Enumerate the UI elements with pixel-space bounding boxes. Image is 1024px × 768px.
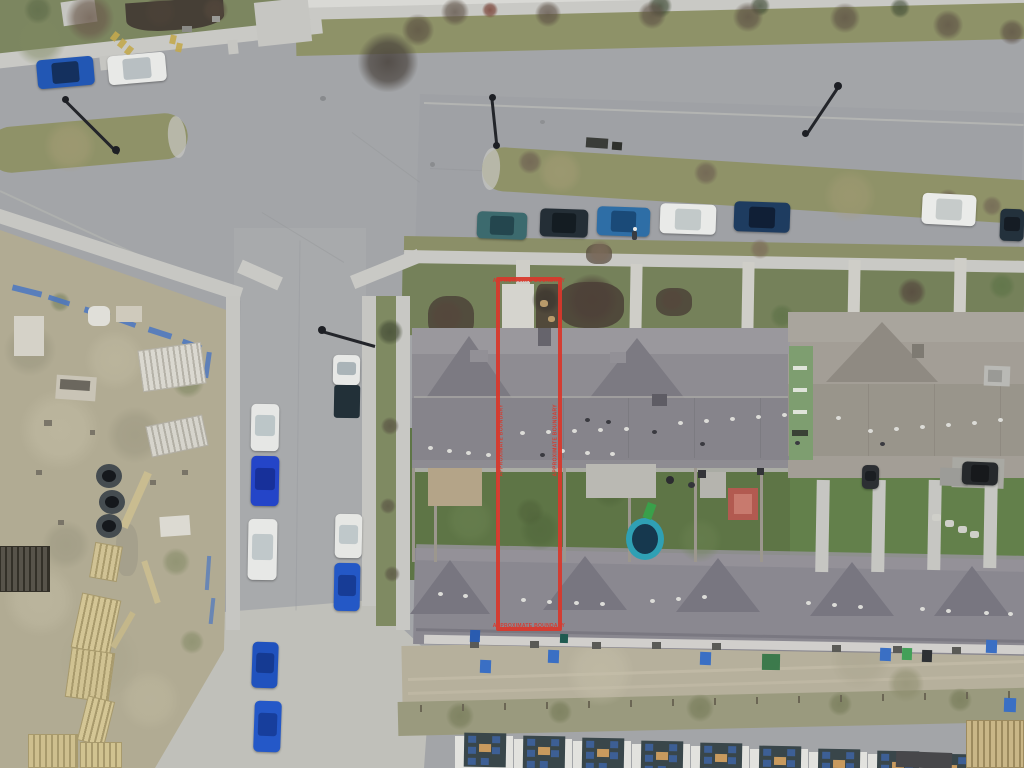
shrub — [989, 273, 1015, 299]
car-white — [921, 193, 977, 227]
skylight — [527, 761, 535, 768]
street-light — [493, 142, 500, 149]
recycle-bin — [470, 630, 480, 642]
car-glass — [337, 362, 356, 376]
car-glass — [256, 653, 275, 674]
roof-vent — [702, 595, 707, 599]
car-white — [251, 404, 280, 451]
stepping-stone — [970, 531, 979, 538]
median-tree — [694, 161, 718, 185]
skylight — [846, 763, 854, 768]
bin-black — [922, 650, 932, 662]
unit-roof — [464, 733, 507, 768]
green-wall-window — [793, 366, 807, 370]
green-wall — [789, 346, 813, 460]
fence-post — [420, 705, 422, 712]
fence-post — [966, 692, 968, 699]
construction-unit — [750, 746, 818, 768]
aerial-photo: APPROXIMATE BOUNDARY APPROXIMATE BOUNDAR… — [0, 0, 1024, 768]
car-blue — [251, 642, 279, 689]
weed-clump — [446, 702, 474, 730]
tree — [66, 0, 114, 42]
skylight — [846, 752, 854, 759]
curb-ramp-pad — [175, 42, 183, 52]
road-crack — [352, 132, 421, 183]
bin-green — [560, 634, 568, 643]
fence-post — [462, 704, 464, 711]
green-wall-window — [793, 388, 807, 392]
skylight — [669, 744, 677, 751]
lot-patch — [20, 390, 100, 470]
shrub — [660, 288, 684, 312]
yard-item — [182, 26, 192, 32]
garage-door — [592, 642, 601, 649]
fence-post — [756, 697, 758, 704]
roof-vent-dark — [880, 442, 885, 446]
roof-vent — [1008, 612, 1013, 616]
roof-vent-dark — [585, 418, 590, 422]
skylight — [822, 752, 830, 759]
construction-unit — [514, 736, 582, 768]
car-white — [659, 203, 716, 235]
car-glass — [252, 533, 273, 560]
roof-vent — [920, 607, 925, 611]
manhole — [430, 162, 435, 167]
lot-debris — [44, 420, 52, 426]
roof-dormer — [610, 352, 626, 363]
tree — [441, 0, 469, 26]
car-blue — [253, 701, 282, 753]
bush — [24, 0, 52, 24]
median-bench — [586, 137, 609, 149]
utility-box-green — [762, 654, 780, 670]
bush — [381, 417, 399, 435]
roof-hatch — [479, 744, 491, 752]
fence-post — [798, 696, 800, 703]
pipe — [96, 464, 122, 488]
garage-door — [652, 642, 661, 649]
roof-vent — [730, 417, 735, 421]
bbq — [666, 476, 674, 484]
car-glass — [552, 213, 576, 233]
roof-vent — [946, 423, 951, 427]
roof-vent — [486, 453, 491, 457]
roof-vent — [574, 601, 579, 605]
roof-vent — [624, 427, 629, 431]
street-light — [489, 94, 496, 101]
roof-vent — [678, 421, 683, 425]
roof-vent — [920, 425, 925, 429]
lot-grass — [162, 548, 190, 576]
street-light — [834, 82, 842, 90]
construction-unit — [455, 733, 523, 768]
car-glass — [339, 524, 358, 544]
car-glass — [255, 415, 275, 436]
construction-unit — [573, 738, 641, 768]
fence-post — [924, 693, 926, 700]
bush — [380, 498, 396, 514]
car-teal — [477, 211, 528, 240]
roof-slope-south — [788, 384, 1024, 456]
lumber-pile — [65, 647, 116, 703]
fence-post — [714, 698, 716, 705]
skylight — [540, 761, 548, 768]
unit-roof — [641, 741, 684, 768]
lot-debris — [90, 430, 95, 435]
roof-hatch — [774, 757, 786, 765]
unit-roof — [523, 736, 566, 768]
pool — [626, 518, 664, 560]
manhole — [540, 120, 545, 124]
boundary-label-right: APPROXIMATE BOUNDARY — [554, 411, 559, 477]
recycle-bin — [700, 652, 711, 665]
skylight — [527, 739, 535, 746]
street-light — [802, 130, 809, 137]
car-glass — [255, 468, 275, 490]
weed-clump — [948, 688, 972, 712]
street-light — [318, 326, 326, 334]
roof-vent-dark — [700, 442, 705, 446]
fence-post — [882, 694, 884, 701]
car-glass — [971, 465, 989, 482]
skylight — [822, 763, 830, 768]
roof-vent — [572, 429, 577, 433]
roof-vent — [946, 609, 951, 613]
skylight — [787, 760, 795, 767]
car-glass — [1003, 216, 1020, 231]
roof-vent — [600, 602, 605, 606]
roof-vent — [704, 419, 709, 423]
unit-roof — [818, 749, 861, 768]
stepping-stone — [958, 526, 967, 533]
skylight — [645, 755, 653, 762]
car-glass — [748, 206, 776, 228]
green-wall-window — [792, 430, 808, 436]
fence-post — [504, 703, 506, 710]
car-white — [335, 514, 363, 558]
roof-vent — [782, 413, 787, 417]
roof-vent — [868, 429, 873, 433]
tree — [830, 3, 860, 33]
fence — [760, 468, 763, 562]
roof-vent — [836, 416, 841, 420]
car-dark — [999, 209, 1024, 242]
roof-vent — [650, 599, 655, 603]
tree — [733, 2, 763, 32]
recycle-bin — [880, 648, 891, 661]
person-head — [633, 227, 637, 231]
skylight — [492, 747, 500, 754]
alley-weeds — [888, 666, 924, 702]
backyard-walkway — [983, 480, 998, 568]
weed-clump — [686, 694, 714, 722]
fence-post — [672, 699, 674, 706]
car-dark — [962, 461, 999, 485]
skylight — [728, 757, 736, 764]
trailer-top — [60, 379, 91, 391]
roof-vent — [598, 428, 603, 432]
fence-post — [546, 702, 548, 709]
fence — [694, 468, 697, 562]
bin-green — [902, 648, 912, 660]
skylight — [468, 736, 476, 743]
skylight — [586, 752, 594, 759]
roof-vent-dark — [606, 420, 611, 424]
boundary-label-bottom: APPROXIMATE BOUNDARY — [493, 624, 565, 629]
sidewalk-street-west — [226, 296, 240, 630]
car-dark — [540, 208, 589, 238]
yard-item — [757, 468, 764, 475]
roof-vent-dark — [652, 430, 657, 434]
unit-roof — [582, 738, 625, 768]
shrub — [898, 278, 926, 306]
roof-vent — [832, 603, 837, 607]
person-body — [632, 231, 637, 240]
fence — [563, 468, 566, 562]
van-white — [107, 52, 167, 86]
lumber-pile — [28, 734, 78, 768]
recycle-bin — [548, 650, 559, 663]
pallet-rack — [0, 546, 50, 592]
skylight — [610, 752, 618, 759]
unit-roof — [700, 743, 743, 768]
median-patch — [538, 150, 582, 194]
median-patch — [824, 170, 876, 222]
skylight — [704, 746, 712, 753]
roof-vent — [894, 427, 899, 431]
skylight — [669, 755, 677, 762]
car-glass — [864, 471, 876, 482]
roof-hatch — [833, 760, 845, 768]
car-glass — [51, 61, 80, 84]
skylight — [704, 757, 712, 764]
tree — [402, 14, 434, 46]
lumber-pile — [80, 742, 122, 768]
weed-clump — [548, 700, 572, 724]
tree — [999, 19, 1024, 45]
roof-vent — [676, 597, 681, 601]
lot-debris — [150, 480, 156, 485]
construction-unit — [809, 749, 877, 768]
property-boundary-overlay: APPROXIMATE BOUNDARY APPROXIMATE BOUNDAR… — [496, 277, 562, 631]
bush — [377, 319, 403, 345]
skylight — [468, 747, 476, 754]
pickup-cab — [333, 355, 361, 385]
car-blue — [334, 563, 361, 611]
skylight — [468, 758, 476, 765]
pipe — [99, 490, 125, 514]
car-darkblue — [733, 201, 790, 233]
roof-vent — [463, 594, 468, 598]
shrub — [566, 274, 618, 326]
deck — [428, 468, 482, 506]
car-dark-small — [862, 465, 879, 489]
skylight — [492, 736, 500, 743]
skylight — [599, 763, 607, 768]
picnic-table-top — [734, 494, 752, 514]
roof-vent — [756, 415, 761, 419]
front-walk — [227, 40, 238, 55]
material-stack — [137, 342, 206, 392]
street-light — [112, 146, 120, 154]
skylight — [645, 744, 653, 751]
lot-grass — [180, 630, 204, 654]
car-blue — [251, 456, 280, 506]
car-blue — [597, 206, 651, 237]
skylight — [610, 741, 618, 748]
roof-slope-north — [788, 312, 1024, 342]
median-tree — [518, 150, 542, 174]
chimney — [652, 394, 667, 406]
roof-vent — [585, 451, 590, 455]
car-glass — [338, 574, 357, 595]
green-wall-window — [793, 410, 807, 414]
lot-debris — [36, 470, 42, 475]
hedge — [890, 0, 910, 18]
roof-vent-dark — [795, 441, 800, 445]
front-walkway — [629, 264, 642, 334]
car-glass — [490, 216, 515, 236]
skylight — [881, 754, 889, 761]
median-tree — [982, 196, 1002, 216]
roof-vent — [858, 605, 863, 609]
driveway — [254, 0, 312, 47]
backyard-walkway — [871, 480, 886, 572]
chimney — [912, 344, 924, 358]
fence-post — [630, 700, 632, 707]
tree-red — [482, 2, 498, 18]
unit-roof — [759, 746, 802, 768]
fence-post — [588, 701, 590, 708]
yard-item — [698, 470, 706, 478]
bbq — [688, 482, 695, 488]
lumber-deck — [966, 720, 1024, 768]
car-glass — [122, 57, 151, 80]
boulevard-tree — [588, 240, 612, 264]
bush — [384, 566, 400, 582]
garage-door — [712, 643, 721, 650]
car-blue — [36, 56, 95, 90]
fence — [412, 468, 415, 562]
recycle-bin — [1004, 698, 1016, 712]
garage-door — [832, 645, 841, 652]
garage-door — [952, 647, 961, 654]
yard-item — [212, 16, 220, 22]
skylight — [763, 760, 771, 767]
roof-vent — [428, 446, 433, 450]
front-walkway — [741, 262, 754, 332]
patio — [586, 464, 656, 498]
roof-hatch — [715, 754, 727, 762]
skylight — [551, 750, 559, 757]
van-white — [247, 519, 277, 580]
manhole — [320, 96, 326, 101]
skylight — [728, 746, 736, 753]
boundary-label-top: APPROXIMATE BOUNDARY — [493, 279, 565, 284]
skylight — [527, 750, 535, 757]
roof-hatch — [656, 752, 668, 760]
roof-vent — [466, 451, 471, 455]
street-light — [62, 96, 69, 103]
roof-party-line — [694, 398, 695, 458]
roof-vent — [447, 449, 452, 453]
skylight — [551, 739, 559, 746]
skylight — [787, 749, 795, 756]
grass-shade — [678, 518, 722, 562]
lot-debris — [58, 520, 64, 525]
car-glass — [258, 713, 278, 736]
lot-debris — [182, 470, 188, 475]
median-patch — [44, 120, 96, 172]
roof-hatch — [538, 747, 550, 755]
garage-door — [893, 646, 902, 653]
white-hexagon — [88, 306, 110, 326]
stepping-stone — [945, 520, 954, 527]
pickup-bed — [334, 385, 361, 418]
roof-hatch — [597, 749, 609, 757]
fence-post — [840, 695, 842, 702]
tree — [933, 10, 963, 40]
recycle-bin — [986, 640, 997, 653]
roof-vent — [806, 601, 811, 605]
rooftop-unit — [988, 370, 1002, 382]
material-stack — [14, 316, 44, 356]
pallet — [116, 306, 142, 322]
recycle-bin — [480, 660, 491, 673]
roof-party-line — [934, 384, 935, 456]
construction-unit — [632, 741, 700, 768]
roof-vent — [438, 592, 443, 596]
stepping-stone — [932, 514, 941, 521]
garage-door — [530, 641, 539, 648]
roof-vent — [984, 611, 989, 615]
tree — [144, 0, 176, 28]
skylight — [481, 758, 489, 765]
backyard-walkway — [927, 480, 942, 570]
roof-vent — [998, 418, 1003, 422]
tree — [535, 1, 561, 27]
boulevard-tree — [750, 239, 770, 259]
car-glass — [935, 198, 962, 221]
pipe — [96, 514, 122, 538]
roof-vent — [610, 452, 615, 456]
skylight — [763, 749, 771, 756]
boundary-label-left: APPROXIMATE BOUNDARY — [500, 411, 505, 477]
backyard-walkway — [815, 480, 830, 572]
roof-party-line — [760, 398, 761, 458]
roof-sliver — [896, 751, 953, 768]
roof-vent — [972, 421, 977, 425]
material-stack — [159, 515, 190, 537]
skylight — [586, 763, 594, 768]
median-bench — [612, 142, 623, 151]
construction-unit — [691, 743, 759, 768]
roof-dormer — [470, 350, 488, 362]
car-glass — [674, 208, 702, 230]
skylight — [586, 741, 594, 748]
roof-party-line — [868, 384, 869, 456]
tree — [638, 1, 666, 29]
